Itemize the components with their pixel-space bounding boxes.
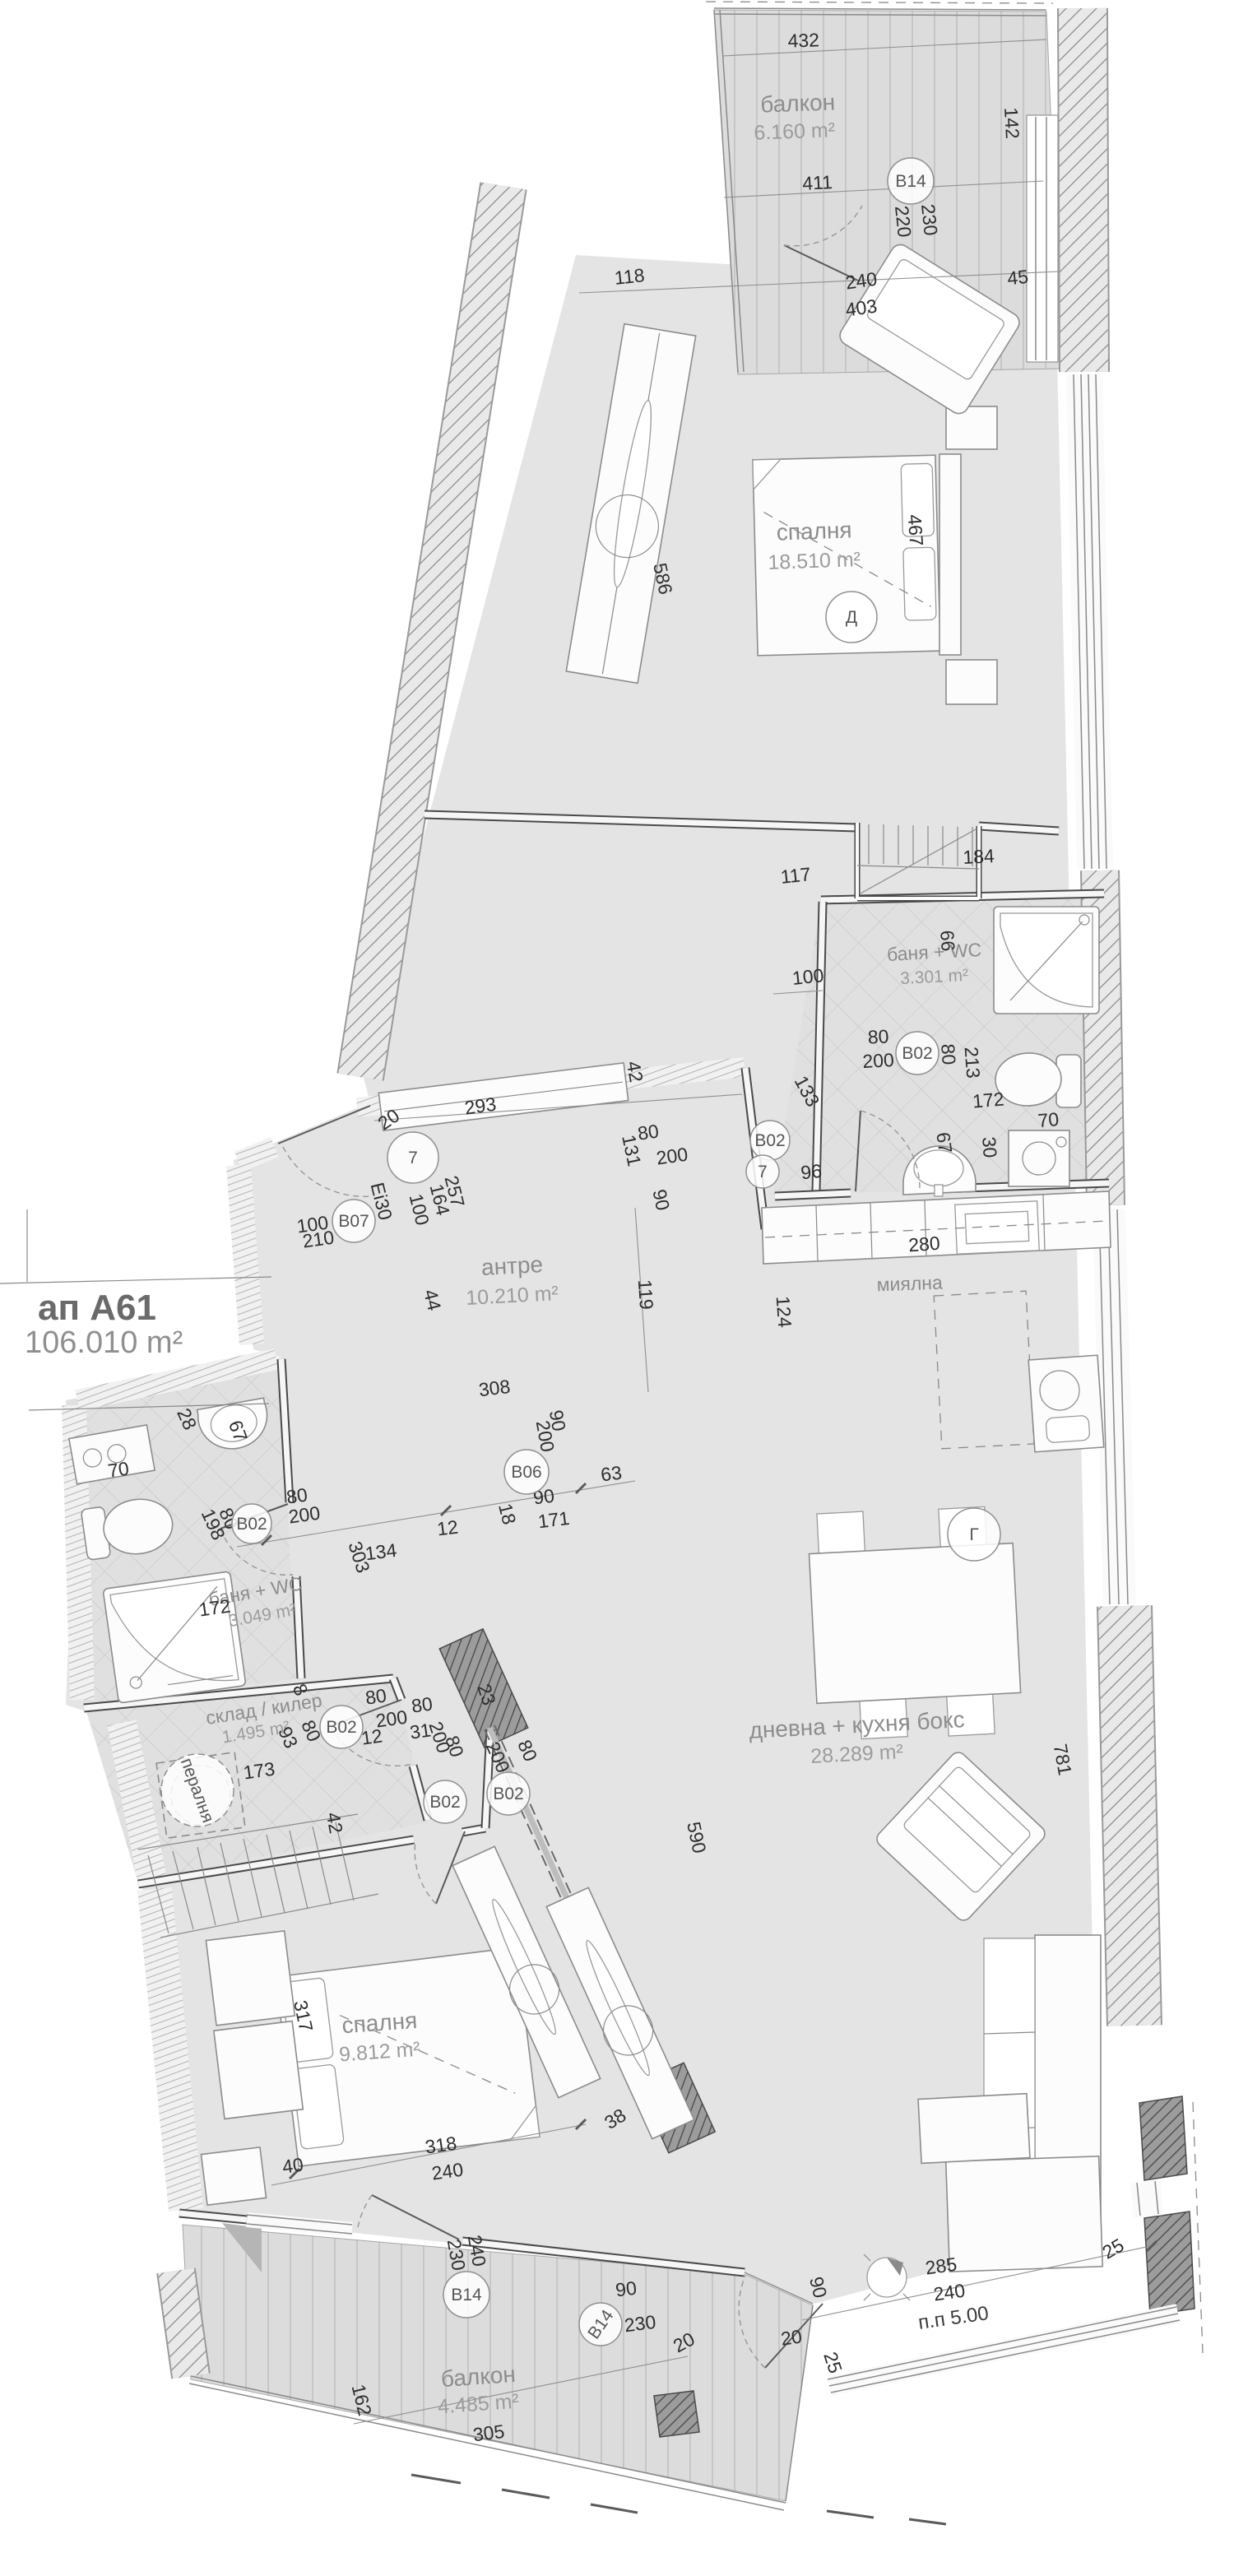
dim-label: 142: [1000, 107, 1023, 140]
dim-label: 318: [424, 2133, 458, 2158]
room-label: спалня: [341, 2007, 419, 2038]
right-wall-top: [1083, 8, 1084, 372]
headboard: [939, 454, 961, 655]
apartment-id: ап А61: [38, 1288, 156, 1328]
pillar-balcony: [654, 2391, 699, 2437]
room-label: миялна: [876, 1272, 943, 1296]
ref-bubble: B02: [896, 1032, 939, 1074]
ref-bubble: Г: [948, 1508, 1000, 1561]
dim-label: 117: [780, 863, 812, 888]
ref-bubble: пералня: [161, 1754, 234, 1826]
ref-bubble-label: Г: [969, 1525, 978, 1544]
dim-label: 411: [802, 171, 833, 194]
room-label: балкон: [760, 89, 836, 117]
dim-label: 308: [477, 1376, 511, 1400]
ref-bubble-label: B02: [429, 1793, 460, 1812]
nightstand: [946, 406, 997, 449]
ref-bubble-label: B07: [338, 1212, 369, 1231]
room-area-label: 28.289 m²: [810, 1740, 904, 1768]
ref-bubble-label: B14: [451, 2286, 482, 2304]
ref-bubble: B14: [443, 2272, 489, 2318]
nightstand-2: [201, 2147, 266, 2205]
toilet-bath1: [995, 1052, 1081, 1107]
floor-plan-drawing: балкон6.160 m²спалня18.510 m²баня + WC3.…: [0, 0, 1234, 2576]
dim-label: 230: [917, 203, 942, 237]
ref-bubble-label: B06: [511, 1463, 541, 1482]
ref-bubble-label: B02: [326, 1718, 356, 1737]
dim-label: 210: [301, 1227, 336, 1252]
dim-label: 20: [779, 2325, 803, 2349]
room-area-label: 3.301 m²: [900, 966, 969, 988]
ref-bubble-label: B02: [902, 1044, 932, 1063]
dim-label: 200: [287, 1502, 322, 1528]
dim-label: 45: [1006, 266, 1029, 290]
room-label: балкон: [440, 2361, 517, 2392]
dim-label: 80: [937, 1043, 960, 1065]
dim-label: 66: [936, 930, 959, 952]
ref-bubble: B06: [504, 1450, 549, 1494]
room-area-label: 18.510 m²: [768, 548, 861, 574]
dim-label: 293: [463, 1093, 498, 1119]
dim-label: 285: [924, 2253, 958, 2279]
dim-label: 70: [1037, 1108, 1060, 1131]
ref-bubble: B07: [332, 1200, 375, 1242]
right-wall-mid: [1100, 870, 1106, 1205]
dim-label: 96: [800, 1160, 823, 1184]
dim-label: 172: [972, 1088, 1004, 1112]
ref-bubble-label: Д: [846, 608, 857, 627]
dim-label: 70: [106, 1457, 130, 1481]
dim-label: 240: [932, 2280, 967, 2305]
ref-bubble: 7: [387, 1132, 438, 1183]
entry-wall-left: [239, 1147, 275, 1162]
right-wall-column: [1125, 1606, 1134, 2026]
ref-bubble-label: 7: [758, 1163, 768, 1181]
bedroom2-window: [247, 2220, 352, 2230]
dim-label: 67: [932, 1130, 956, 1154]
dim-label: 467: [904, 513, 928, 546]
dim-label: 305: [471, 2421, 505, 2445]
dim-label: 80: [364, 1684, 387, 1708]
dim-label: 200: [862, 1049, 895, 1072]
nightstand: [946, 660, 997, 704]
dim-label: 119: [634, 1279, 657, 1310]
dim-label: 12: [360, 1724, 383, 1748]
pillar-se-2: [1144, 2212, 1195, 2315]
dim-label: 230: [623, 2311, 656, 2336]
dim-label: 432: [787, 29, 819, 51]
room-area-label: 10.210 m²: [466, 1282, 559, 1310]
corridor-wall: [239, 1165, 252, 1344]
ref-bubble: B02: [487, 1772, 530, 1815]
dim-label: 240: [844, 268, 879, 294]
dim-label: 403: [844, 295, 879, 321]
shower-bath1: [994, 907, 1099, 1014]
washing-machine-bath1: [1009, 1130, 1069, 1186]
dim-label: 171: [536, 1507, 570, 1532]
dim-label: 30: [978, 1136, 1001, 1158]
dim-label: 40: [281, 2153, 304, 2177]
dim-label: 90: [615, 2277, 638, 2301]
ref-bubble: B02: [750, 1121, 790, 1160]
dim-label: 173: [242, 1758, 276, 1784]
ref-bubble: B14: [888, 158, 934, 204]
dim-label: 42: [322, 1811, 347, 1836]
room-area-label: 6.160 m²: [754, 118, 836, 144]
room-label: спалня: [776, 517, 852, 545]
dim-label: 213: [961, 1046, 985, 1079]
ref-bubble: B14: [579, 2303, 622, 2346]
dim-label: 280: [907, 1232, 940, 1256]
dim-label: 12: [436, 1516, 460, 1540]
dim-label: 124: [772, 1295, 796, 1328]
ref-bubble: Д: [826, 592, 877, 643]
dim-label: 80: [410, 1692, 434, 1716]
ref-bubble-label: B14: [895, 172, 926, 191]
ref-bubble: B02: [424, 1780, 466, 1823]
dim-label: 63: [600, 1462, 624, 1486]
ref-bubble: 7: [746, 1155, 779, 1188]
dim-label: 172: [197, 1595, 232, 1621]
railing-top: [714, 8, 1046, 10]
dim-label: 200: [655, 1144, 689, 1169]
dim-label: 240: [430, 2159, 465, 2184]
ref-bubble-label: 7: [408, 1149, 418, 1167]
pillar-se-1: [1139, 2096, 1187, 2180]
dim-label: 100: [791, 964, 825, 989]
dim-label: 220: [891, 205, 916, 239]
note-label: п.п 5.00: [916, 2302, 990, 2334]
dim-label: 25: [819, 2349, 847, 2375]
dim-label: 42: [623, 1060, 647, 1084]
dim-label: 31: [408, 1719, 432, 1743]
ref-bubble-label: B02: [236, 1515, 267, 1534]
dim-label: 80: [867, 1025, 889, 1047]
dim-label: 118: [614, 264, 646, 289]
dim-label: 90: [648, 1187, 674, 1212]
ref-bubble-label: B02: [493, 1785, 523, 1803]
floor-plan-page: балкон6.160 m²спалня18.510 m²баня + WC3.…: [0, 0, 1234, 2576]
ref-bubble: B02: [320, 1706, 363, 1748]
ref-bubble-label: B02: [754, 1131, 785, 1150]
dim-label: 134: [364, 1539, 397, 1565]
ref-bubble: B02: [232, 1504, 271, 1543]
balcony-left-wall: [176, 2271, 191, 2376]
dim-label: 184: [963, 845, 995, 868]
fridge: [1028, 1355, 1104, 1452]
coffee-table: [918, 2094, 1030, 2164]
room-label: антре: [480, 1251, 544, 1280]
window-column: [1027, 115, 1058, 362]
apartment-area: 106.010 m²: [25, 1325, 183, 1360]
